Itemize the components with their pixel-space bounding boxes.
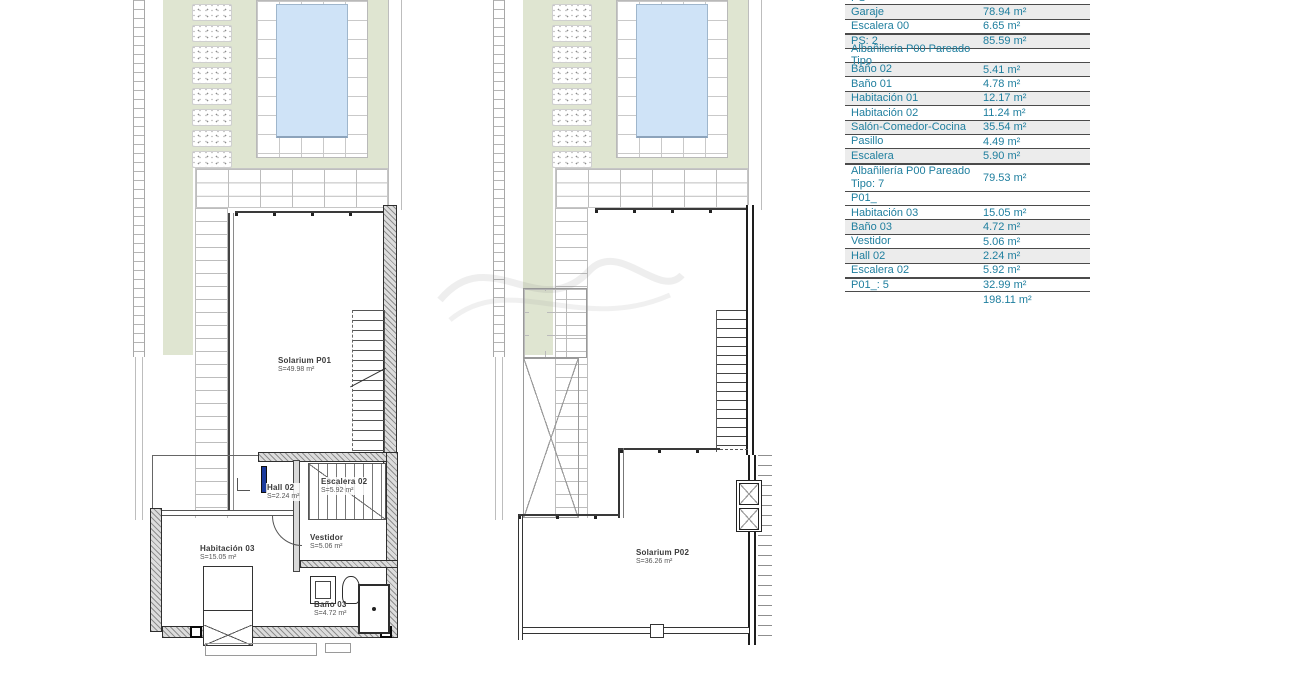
schedule-row-value: 32.99 m² <box>979 279 1090 291</box>
boundary-line-left <box>135 357 143 520</box>
door-swing-mark <box>237 478 250 491</box>
schedule-row-value: 5.90 m² <box>979 150 1090 162</box>
schedule-row: 198.11 m² <box>845 292 1090 307</box>
room-label-bano-03: Baño 03 S=4.72 m² <box>314 600 347 618</box>
wall <box>258 452 398 462</box>
interior-wall <box>300 560 398 568</box>
schedule-row-label: Baño 01 <box>845 78 979 90</box>
room-area: S=49.98 m² <box>278 366 331 374</box>
entry-step <box>325 643 351 653</box>
room-name: Solarium P01 <box>278 356 331 366</box>
schedule-row-label: PS <box>845 0 979 4</box>
room-area: S=5.06 m² <box>310 543 343 551</box>
garden-side-strip <box>163 168 193 355</box>
side-walkway <box>388 0 402 210</box>
balustrade-railing <box>595 208 750 213</box>
schedule-row-label: P01_ <box>845 192 979 204</box>
parapet-wall <box>518 514 523 640</box>
room-label-escalera-02: Escalera 02 S=5.92 m² <box>320 477 368 495</box>
stepping-stone <box>192 67 232 84</box>
room-label-habitacion-03: Habitación 03 S=15.05 m² <box>200 544 255 562</box>
entry-step <box>205 643 317 656</box>
floor-plan-right: Solarium P02 S=36.26 m² <box>490 0 800 698</box>
stepping-stone <box>552 46 592 63</box>
schedule-row-value: 85.59 m² <box>979 35 1090 47</box>
schedule-row: Pasillo4.49 m² <box>845 135 1090 149</box>
schedule-row-label: Habitación 02 <box>845 107 979 119</box>
chimney-shafts <box>736 480 762 532</box>
stepping-stone <box>552 4 592 21</box>
parapet-wall <box>618 448 624 518</box>
door-swing-arc <box>272 516 302 546</box>
schedule-row-label: Pasillo <box>845 135 979 147</box>
room-area: S=15.05 m² <box>200 554 255 562</box>
schedule-row-label: Escalera <box>845 150 979 162</box>
parapet-railing <box>620 448 720 453</box>
stepping-stone <box>192 46 232 63</box>
schedule-row-label: Vestidor <box>845 235 979 247</box>
stepping-stone <box>552 67 592 84</box>
room-label-vestidor: Vestidor S=5.06 m² <box>310 533 343 551</box>
schedule-row: Hall 022.24 m² <box>845 249 1090 263</box>
stepping-stone <box>192 88 232 105</box>
room-label-solarium-p01: Solarium P01 S=49.98 m² <box>278 356 331 374</box>
schedule-row-value: 4.49 m² <box>979 136 1090 148</box>
schedule-row-value: 5.41 m² <box>979 64 1090 76</box>
boundary-fence-left <box>133 0 145 357</box>
room-label-solarium-p02: Solarium P02 S=36.26 m² <box>636 548 689 566</box>
swimming-pool <box>636 4 708 138</box>
bed-pillows <box>204 610 252 645</box>
schedule-row-value: 78.94 m² <box>979 6 1090 18</box>
room-area: S=36.26 m² <box>636 558 689 566</box>
swimming-pool <box>276 4 348 138</box>
schedule-row-value: 79.53 m² <box>979 172 1090 184</box>
schedule-row-label: Baño 03 <box>845 221 979 233</box>
room-name: Escalera 02 <box>321 477 367 487</box>
stepping-stone <box>192 4 232 21</box>
terrace-tiles <box>555 168 748 208</box>
escalera-stairs <box>352 310 385 456</box>
schedule-row: Baño 014.78 m² <box>845 77 1090 91</box>
floor-plan-left: Solarium P01 S=49.98 m² Hall 02 S=2.24 <box>130 0 430 698</box>
parapet-wall <box>523 627 749 634</box>
room-name: Hall 02 <box>267 483 300 493</box>
wall-pillar <box>190 626 202 638</box>
schedule-row-value: 4.78 m² <box>979 78 1090 90</box>
shower-drain <box>372 607 376 611</box>
stair-break-line <box>350 368 386 388</box>
stepping-stone <box>552 109 592 126</box>
room-name: Solarium P02 <box>636 548 689 558</box>
balustrade-railing <box>235 211 397 216</box>
terrace-tiles <box>195 168 388 208</box>
schedule-row: Albañilería P00 Pareado Tipo <box>845 49 1090 63</box>
schedule-row-label: Albañilería P00 Pareado Tipo: 7 <box>845 165 979 190</box>
schedule-row: Habitación 0112.17 m² <box>845 92 1090 106</box>
schedule-row-value: 5.92 m² <box>979 264 1090 276</box>
stepping-stone <box>192 109 232 126</box>
wall-post <box>650 624 664 638</box>
schedule-row-label: Escalera 02 <box>845 264 979 276</box>
room-name: Baño 03 <box>314 600 347 610</box>
schedule-row-label: Habitación 01 <box>845 92 979 104</box>
chimney-x-box <box>739 483 759 505</box>
stepping-stone <box>192 25 232 42</box>
schedule-row: Escalera 006.65 m² <box>845 20 1090 34</box>
watermark <box>430 230 690 340</box>
stepping-stone <box>192 151 232 168</box>
bed <box>203 566 253 646</box>
schedule-row-label: Hall 02 <box>845 250 979 262</box>
party-wall <box>746 205 754 455</box>
area-schedule: PSGaraje78.94 m²Escalera 006.65 m²PS: 28… <box>845 0 1090 307</box>
schedule-row-value: 12.17 m² <box>979 92 1090 104</box>
schedule-row: Habitación 0211.24 m² <box>845 106 1090 120</box>
schedule-row-value: 15.05 m² <box>979 207 1090 219</box>
schedule-row-value: 4.72 m² <box>979 221 1090 233</box>
stepping-stone <box>552 88 592 105</box>
schedule-row: Salón-Comedor-Cocina35.54 m² <box>845 121 1090 135</box>
room-name: Habitación 03 <box>200 544 255 554</box>
shower <box>358 584 390 634</box>
schedule-row-label: Escalera 00 <box>845 20 979 32</box>
stepping-stone <box>552 151 592 168</box>
stepping-stone <box>552 25 592 42</box>
chimney-x-box <box>739 508 759 530</box>
schedule-row-label: P01_: 5 <box>845 279 979 291</box>
boundary-line-left <box>495 357 503 520</box>
void-cross-brace <box>523 358 579 518</box>
schedule-row-label: Baño 02 <box>845 63 979 75</box>
schedule-row: Baño 034.72 m² <box>845 220 1090 234</box>
stepping-stone <box>192 130 232 147</box>
schedule-row-value: 2.24 m² <box>979 250 1090 262</box>
schedule-row: Escalera 025.92 m² <box>845 264 1090 278</box>
schedule-row-value: 11.24 m² <box>979 107 1090 119</box>
schedule-row: P01_: 532.99 m² <box>845 278 1090 292</box>
side-walkway <box>748 0 762 210</box>
room-area: S=5.92 m² <box>321 487 367 495</box>
escalera-stairs <box>716 310 746 452</box>
room-name: Vestidor <box>310 533 343 543</box>
exterior-wall <box>150 508 162 632</box>
schedule-row: P01_ <box>845 192 1090 206</box>
schedule-row: Vestidor5.06 m² <box>845 235 1090 249</box>
schedule-row: Habitación 0315.05 m² <box>845 206 1090 220</box>
room-area: S=2.24 m² <box>267 493 300 501</box>
schedule-row: Baño 025.41 m² <box>845 63 1090 77</box>
schedule-row: Escalera5.90 m² <box>845 149 1090 163</box>
schedule-row-label: Garaje <box>845 6 979 18</box>
dash-dot-line <box>720 449 748 450</box>
stepping-stone <box>552 130 592 147</box>
schedule-row: Albañilería P00 Pareado Tipo: 779.53 m² <box>845 164 1090 192</box>
room-area: S=4.72 m² <box>314 610 347 618</box>
schedule-row: Garaje78.94 m² <box>845 5 1090 19</box>
schedule-row-label: Salón-Comedor-Cocina <box>845 121 979 133</box>
room-label-hall-02: Hall 02 S=2.24 m² <box>266 483 301 501</box>
schedule-row-value: 35.54 m² <box>979 121 1090 133</box>
schedule-row-value: 6.65 m² <box>979 20 1090 32</box>
schedule-row-label: Habitación 03 <box>845 207 979 219</box>
parapet-railing <box>518 514 620 519</box>
schedule-row-value: 198.11 m² <box>979 294 1090 306</box>
drawing-sheet: Solarium P01 S=49.98 m² Hall 02 S=2.24 <box>0 0 1290 698</box>
sink-basin <box>315 581 331 599</box>
schedule-row-value: 5.06 m² <box>979 236 1090 248</box>
